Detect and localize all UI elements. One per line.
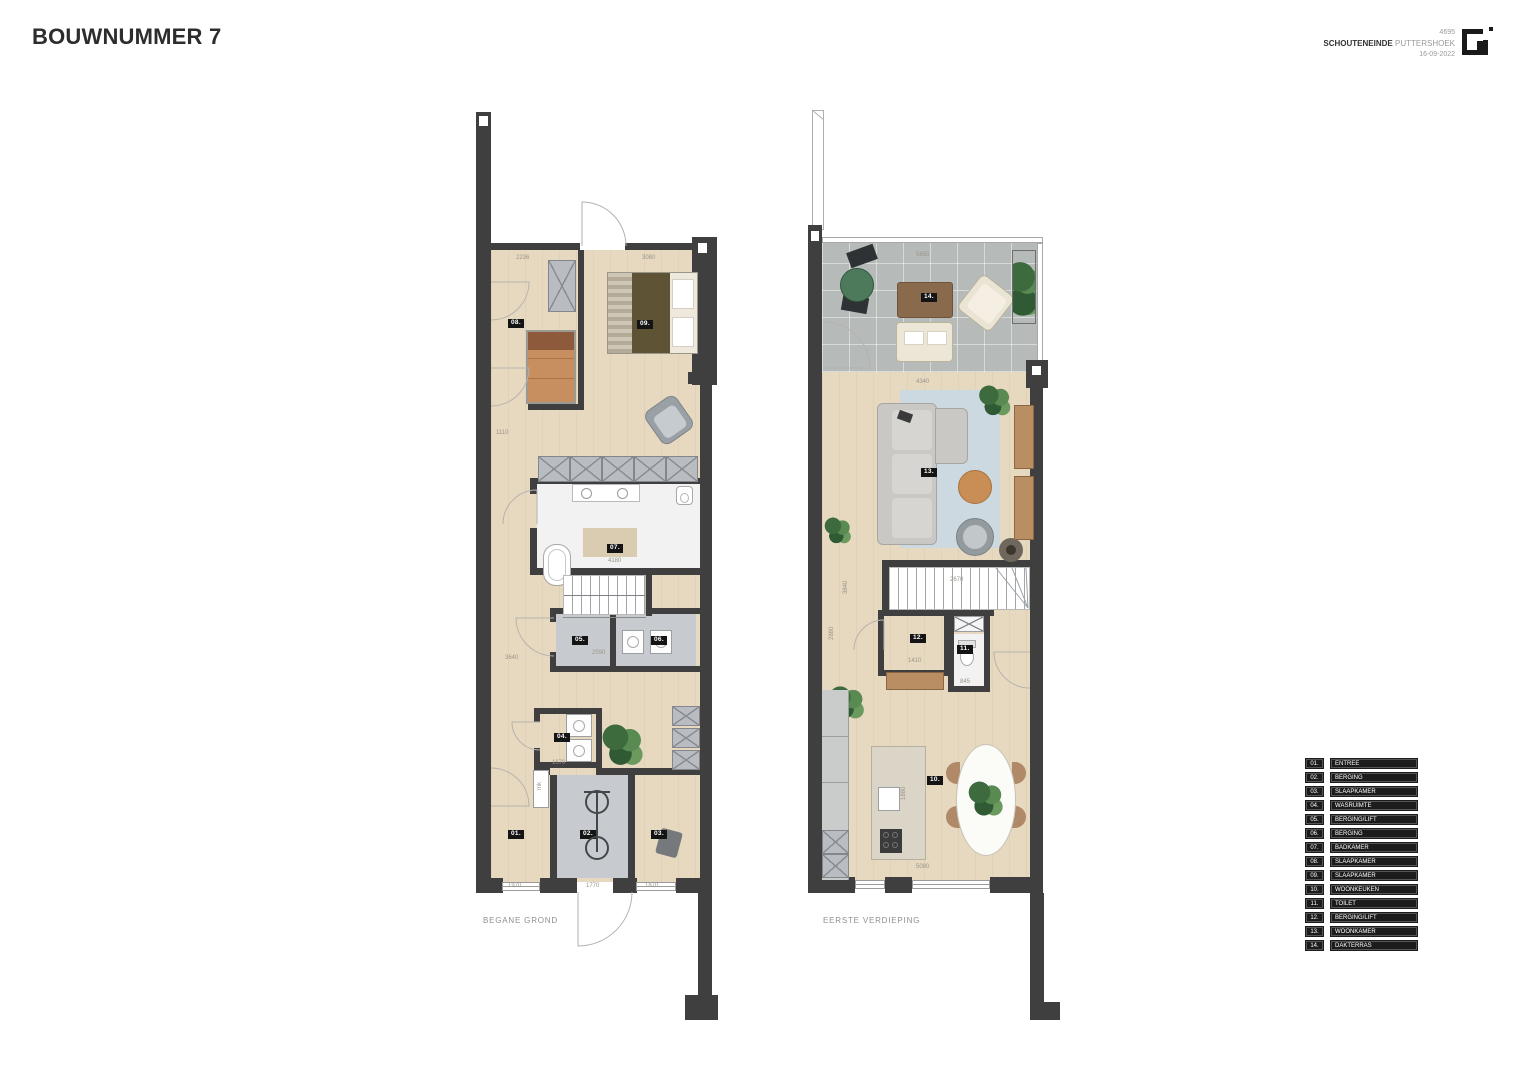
- dimension-label: 2880: [829, 627, 835, 640]
- legend-number: 10.: [1305, 884, 1324, 895]
- toilet-ground: [676, 486, 693, 505]
- legend-number: 11.: [1305, 898, 1324, 909]
- legend-number: 01.: [1305, 758, 1324, 769]
- dimension-label: 845: [960, 679, 970, 685]
- room-tag: 05.: [572, 636, 588, 645]
- dimension-label: 3840: [843, 581, 849, 594]
- legend-number: 09.: [1305, 870, 1324, 881]
- legend-label: WOONKEUKEN: [1330, 884, 1418, 895]
- dimension-label: 5080: [916, 864, 929, 870]
- legend-number: 04.: [1305, 800, 1324, 811]
- legend-row: 08. SLAAPKAMER: [1305, 856, 1418, 867]
- room-tag: 10.: [927, 776, 943, 785]
- sideboard-hall: [886, 672, 944, 690]
- dimension-label: 1870: [645, 883, 658, 889]
- legend-row: 05. BERGING/LIFT: [1305, 814, 1418, 825]
- drawing-date: 16-09-2022: [1323, 50, 1455, 60]
- legend-row: 06. BERGING: [1305, 828, 1418, 839]
- legend-row: 11. TOILET: [1305, 898, 1418, 909]
- stairs-ground: [563, 575, 646, 615]
- legend-row: 13. WOONKAMER: [1305, 926, 1418, 937]
- drawing-sheet: { "title": "BOUWNUMMER 7", "project": { …: [0, 0, 1523, 1080]
- room-tag: 01.: [508, 830, 524, 839]
- dining-table-plant: [968, 778, 1004, 818]
- room-tag: 09.: [637, 320, 653, 329]
- project-number: 4695: [1323, 28, 1455, 38]
- room-tag: 03.: [651, 830, 667, 839]
- legend-number: 07.: [1305, 842, 1324, 853]
- legend-label: BERGING/LIFT: [1330, 912, 1418, 923]
- legend-label: SLAAPKAMER: [1330, 870, 1418, 881]
- terrace-planter: [1012, 250, 1036, 324]
- legend-row: 10. WOONKEUKEN: [1305, 884, 1418, 895]
- wardrobe-bedroom-08: [548, 260, 576, 312]
- legend-label: TOILET: [1330, 898, 1418, 909]
- stair-railing: [563, 617, 646, 618]
- room-tag: 13.: [921, 468, 937, 477]
- stairs-first: [889, 567, 1030, 610]
- dimension-label: 1880: [901, 787, 907, 800]
- room-tag: 12.: [910, 634, 926, 643]
- legend-number: 02.: [1305, 772, 1324, 783]
- legend-label: BERGING: [1330, 772, 1418, 783]
- sideboard-2: [1014, 476, 1034, 540]
- sideboard-1: [1014, 405, 1034, 469]
- kitchen-cabinet-x1: [822, 830, 849, 854]
- room-tag: 04.: [554, 733, 570, 742]
- legend-row: 12. BERGING/LIFT: [1305, 912, 1418, 923]
- kitchen-island: [871, 746, 926, 860]
- terrace-sofa: [896, 322, 953, 362]
- legend-row: 04. WASRUIMTE: [1305, 800, 1418, 811]
- legend: 01. ENTREE 02. BERGING 03. SLAAPKAMER 04…: [1305, 758, 1418, 951]
- coffee-table: [958, 470, 992, 504]
- legend-row: 01. ENTREE: [1305, 758, 1418, 769]
- dimension-label: 2670: [950, 577, 963, 583]
- title-block: 4695 SCHOUTENEINDE PUTTERSHOEK 16-09-202…: [1323, 28, 1455, 60]
- legend-label: BERGING/LIFT: [1330, 814, 1418, 825]
- caption-first: EERSTE VERDIEPING: [823, 916, 920, 925]
- page-title: BOUWNUMMER 7: [32, 24, 221, 50]
- caption-ground: BEGANE GROND: [483, 916, 558, 925]
- bath-mat: [583, 528, 637, 557]
- room-tag: 06.: [651, 636, 667, 645]
- dimension-label: 1670: [552, 760, 565, 766]
- dimension-label: 3080: [642, 255, 655, 261]
- legend-number: 14.: [1305, 940, 1324, 951]
- plant-living-2: [824, 515, 852, 545]
- legend-number: 05.: [1305, 814, 1324, 825]
- kitchen-cabinet-x2: [822, 854, 849, 878]
- appliance-berging-1: [622, 630, 644, 654]
- legend-row: 02. BERGING: [1305, 772, 1418, 783]
- legend-number: 13.: [1305, 926, 1324, 937]
- bed-bedroom-08: [526, 330, 576, 404]
- legend-number: 06.: [1305, 828, 1324, 839]
- legend-label: WOONKAMER: [1330, 926, 1418, 937]
- legend-label: BERGING: [1330, 828, 1418, 839]
- bathroom-vanity: [572, 484, 640, 502]
- dryer: [566, 739, 592, 762]
- legend-label: SLAAPKAMER: [1330, 786, 1418, 797]
- plant-living-1: [978, 383, 1012, 417]
- legend-label: SLAAPKAMER: [1330, 856, 1418, 867]
- bed-bedroom-09: [607, 272, 698, 354]
- legend-label: WASRUIMTE: [1330, 800, 1418, 811]
- plant-hall: [602, 720, 644, 768]
- pouf: [999, 538, 1023, 562]
- brand-logo-icon: [1462, 27, 1492, 57]
- room-tag: 08.: [508, 319, 524, 328]
- dimension-label: 3640: [505, 655, 518, 661]
- legend-row: 07. BADKAMER: [1305, 842, 1418, 853]
- lounge-chair: [956, 518, 994, 556]
- dimension-label: 1770: [586, 883, 599, 889]
- legend-number: 03.: [1305, 786, 1324, 797]
- dimension-label: 1410: [908, 658, 921, 664]
- legend-row: 14. DAKTERRAS: [1305, 940, 1418, 951]
- legend-number: 12.: [1305, 912, 1324, 923]
- room-tag: 14.: [921, 293, 937, 302]
- terrace-table: [840, 268, 874, 302]
- dimension-label: 5650: [916, 252, 929, 258]
- dimension-label: 1970: [508, 883, 521, 889]
- legend-label: BADKAMER: [1330, 842, 1418, 853]
- dimension-label: mk: [537, 782, 543, 790]
- legend-number: 08.: [1305, 856, 1324, 867]
- project-address: SCHOUTENEINDE PUTTERSHOEK: [1323, 38, 1455, 50]
- room-tag: 02.: [580, 830, 596, 839]
- legend-label: ENTREE: [1330, 758, 1418, 769]
- legend-row: 03. SLAAPKAMER: [1305, 786, 1418, 797]
- dimension-label: 4180: [608, 558, 621, 564]
- door-arcs-layer: [0, 0, 1523, 1080]
- dimension-label: 2236: [516, 255, 529, 261]
- sofa-chaise: [935, 408, 968, 464]
- dimension-label: 1110: [496, 430, 508, 436]
- legend-label: DAKTERRAS: [1330, 940, 1418, 951]
- dimension-label: 4340: [916, 379, 929, 385]
- legend-row: 09. SLAAPKAMER: [1305, 870, 1418, 881]
- room-tag: 11.: [957, 645, 973, 654]
- shaft: [954, 616, 984, 632]
- room-tag: 07.: [607, 544, 623, 553]
- dimension-label: 2590: [592, 650, 605, 656]
